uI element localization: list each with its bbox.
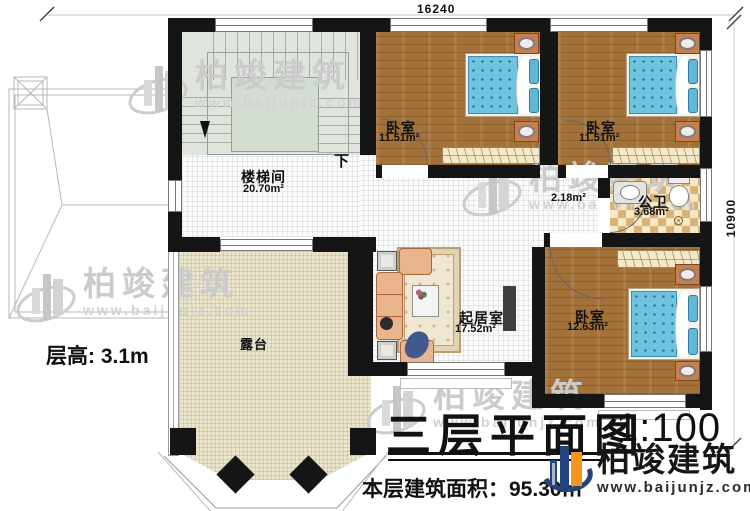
sofa	[376, 272, 403, 340]
wall	[348, 362, 407, 376]
nightstand	[675, 264, 700, 285]
window	[700, 50, 712, 117]
nightstand	[675, 361, 700, 381]
window	[700, 286, 712, 352]
room-area-bedroom-a: 11.51m²	[379, 132, 419, 144]
door-opening	[550, 233, 602, 247]
flowers-icon	[414, 287, 428, 301]
room-area-bedroom-c: 12.63m²	[567, 321, 608, 333]
dimension-top: 16240	[417, 2, 455, 16]
terrace-left-railing	[168, 250, 179, 456]
room-area-stairwell: 20.70m²	[243, 183, 284, 195]
room-area-bedroom-b: 11.51m²	[579, 132, 619, 144]
cushion	[380, 317, 393, 330]
wall	[598, 178, 610, 198]
wall	[168, 18, 182, 180]
room-area-bathroom: 3.68m²	[634, 206, 669, 218]
wall	[360, 32, 376, 155]
wall	[700, 117, 712, 168]
nightstand	[675, 121, 700, 142]
window	[550, 18, 648, 32]
window-sill	[400, 378, 512, 389]
terrace-column	[350, 428, 376, 455]
wardrobe	[442, 147, 540, 164]
door-opening	[566, 165, 608, 178]
armchair	[399, 248, 432, 275]
door-opening	[598, 198, 610, 232]
wall	[348, 252, 373, 376]
window	[407, 362, 505, 376]
wall	[505, 362, 545, 376]
brand-logo: 柏竣建筑 www.baijunjz.com、	[539, 443, 750, 505]
stair-landing-panel	[231, 77, 319, 152]
window	[390, 18, 487, 32]
wall	[700, 222, 712, 286]
side-table	[377, 341, 397, 360]
door-leaf	[503, 286, 516, 331]
terrace-sliding-door	[220, 239, 313, 251]
brand-name: 柏竣建筑	[597, 443, 750, 476]
bed	[628, 288, 700, 360]
wall	[608, 165, 712, 178]
window	[215, 18, 313, 32]
wardrobe	[612, 147, 700, 164]
window	[168, 180, 182, 212]
room-label-terrace: 露台	[240, 334, 268, 353]
terrace-floor	[179, 250, 371, 480]
floor-drain-icon	[674, 216, 683, 225]
hall-area-label: 2.18m²	[551, 192, 586, 204]
wall	[602, 233, 712, 247]
room-area-living: 17.52m²	[455, 323, 496, 335]
brand-logo-icon	[539, 443, 593, 505]
stair-down-label: 下	[334, 150, 350, 171]
window	[700, 168, 712, 222]
nightstand	[514, 121, 539, 142]
wall	[540, 32, 558, 165]
door-opening	[382, 165, 428, 178]
floor-height-note: 层高: 3.1m	[46, 340, 149, 370]
stair-treads-right	[317, 97, 360, 153]
brand-website-text: www.baijunjz.com	[597, 479, 750, 496]
dimension-right: 10900	[724, 188, 738, 248]
toilet-bowl	[669, 185, 689, 207]
nightstand	[514, 33, 539, 54]
brand-website: www.baijunjz.com、	[597, 476, 750, 497]
nightstand	[675, 33, 700, 54]
wall	[313, 237, 376, 252]
wall	[700, 18, 712, 50]
terrace-column	[170, 428, 196, 455]
side-table	[377, 251, 397, 271]
wall	[168, 237, 220, 252]
wall	[428, 165, 540, 178]
bed	[626, 53, 700, 117]
stair-direction-arrow-icon	[200, 121, 210, 138]
wall	[558, 165, 566, 178]
bed	[465, 53, 541, 117]
floor-plan: 柏竣建筑 www.baijunjz.com 柏竣建筑 www.baijunjz.…	[0, 0, 750, 511]
